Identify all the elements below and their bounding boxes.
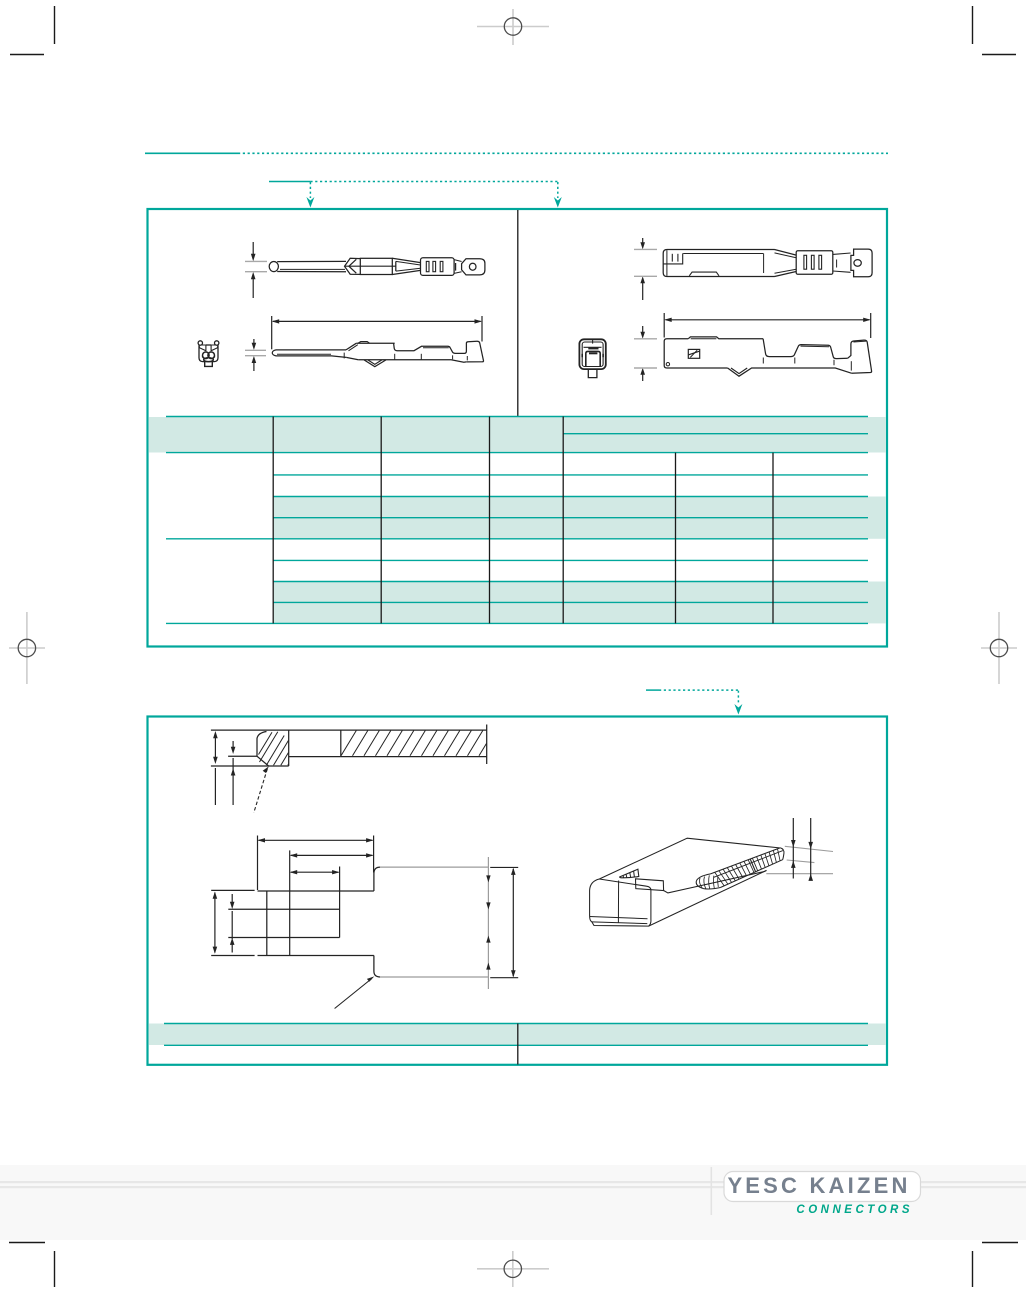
svg-text:CONNECTORS: CONNECTORS: [796, 1204, 913, 1216]
svg-text:YESC KAIZEN: YESC KAIZEN: [727, 1173, 910, 1198]
